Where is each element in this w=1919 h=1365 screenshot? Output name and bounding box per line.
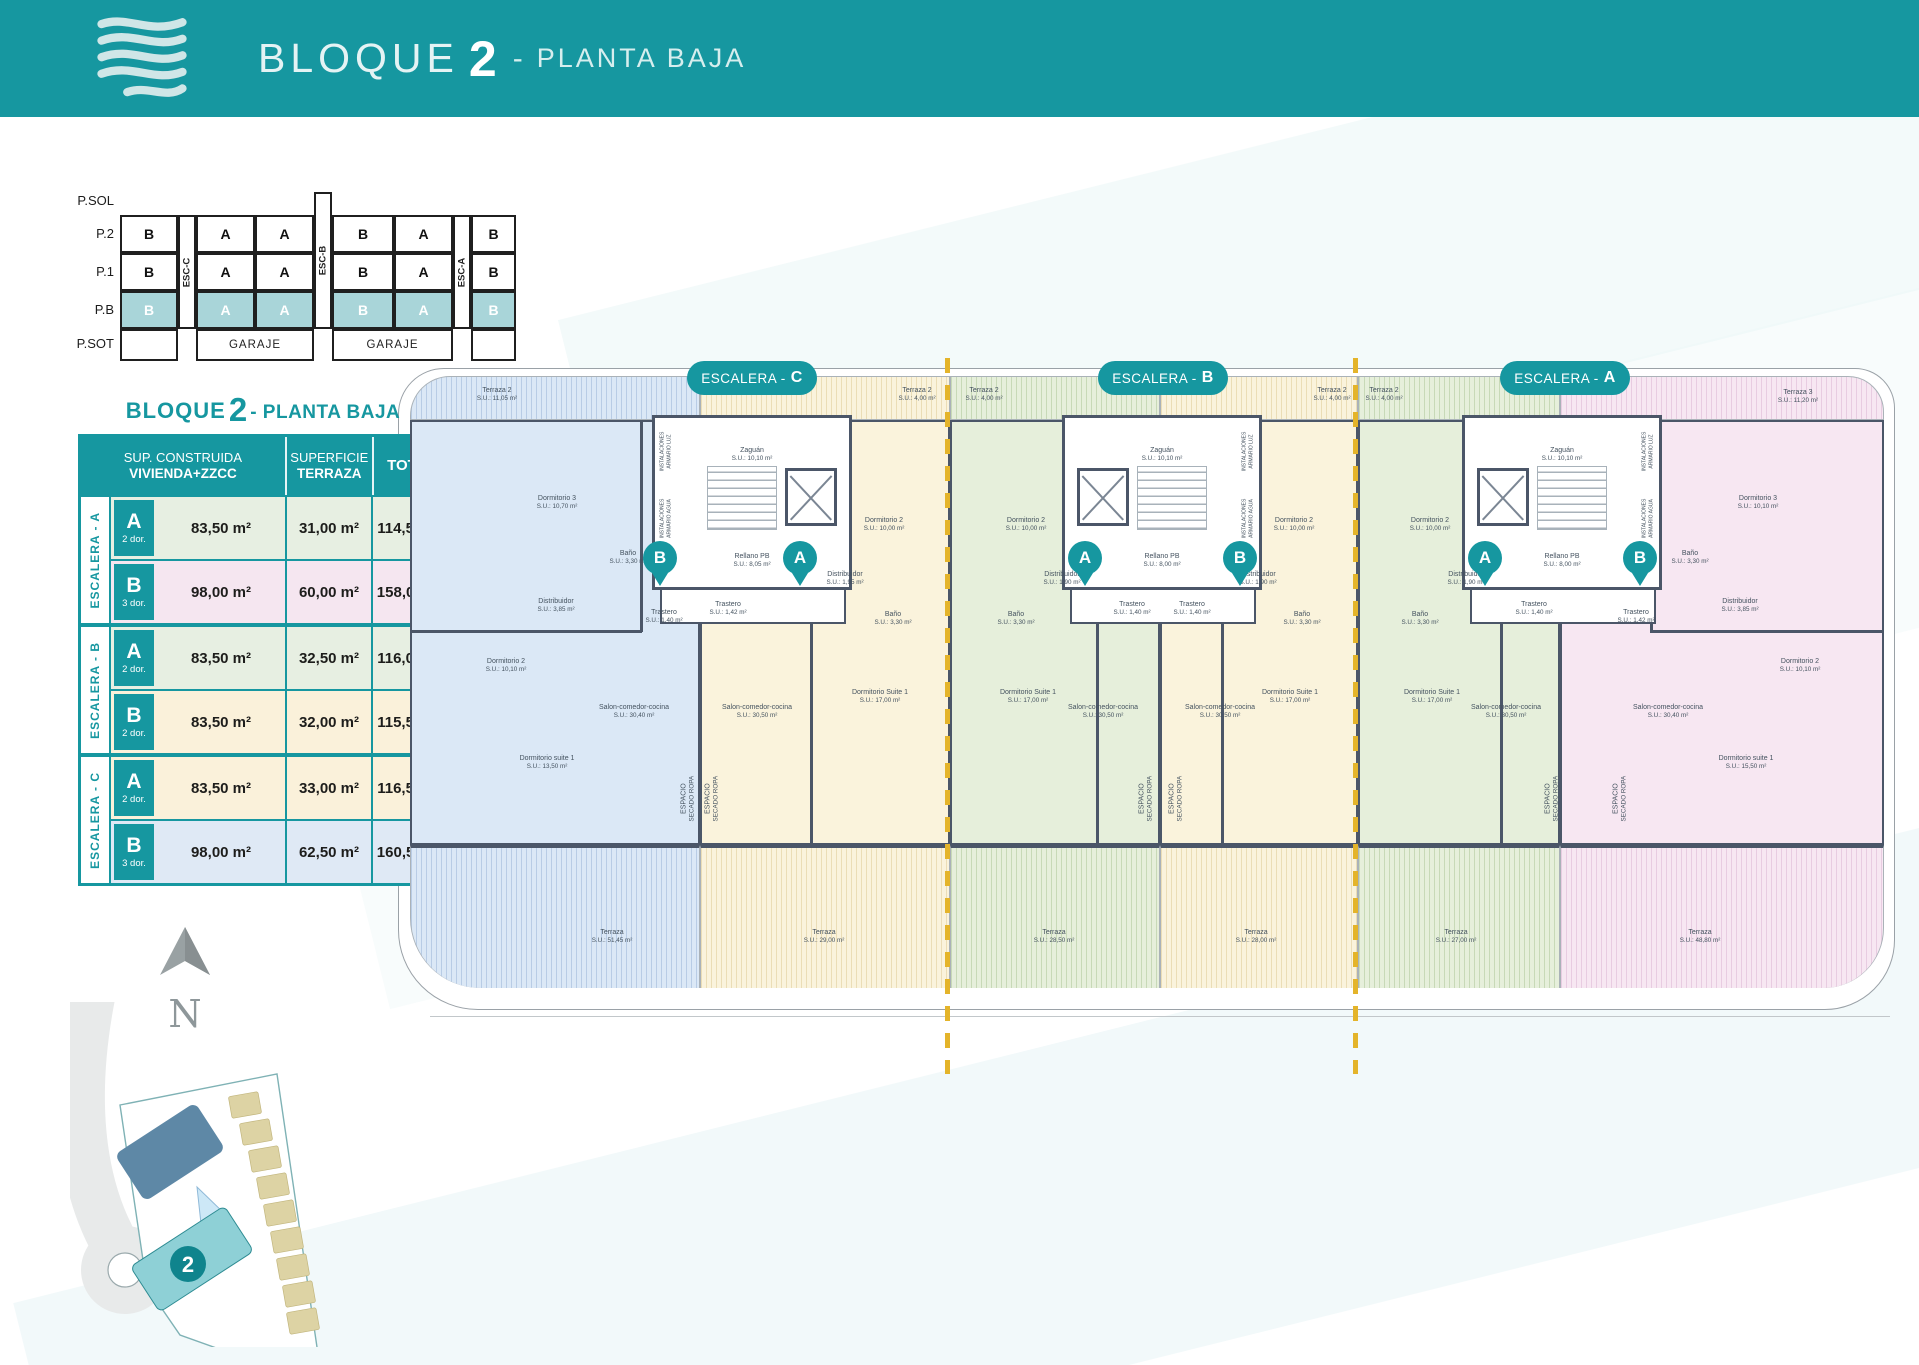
page-title: BLOQUE 2 - PLANTA BAJA	[258, 0, 746, 117]
room-label: TrasteroS.U.: 1,42 m²	[709, 600, 746, 617]
room-label: Dormitorio 2S.U.: 10,10 m²	[486, 657, 527, 674]
room-label: Salon-comedor-cocinaS.U.: 30,40 m²	[599, 703, 669, 720]
room-label: Salon-comedor-cocinaS.U.: 30,40 m²	[1633, 703, 1703, 720]
room-label: TerrazaS.U.: 51,45 m²	[592, 928, 633, 945]
townhouse	[270, 1227, 303, 1254]
section-divider	[1353, 358, 1358, 1074]
room-label: ZaguánS.U.: 10,10 m²	[1142, 446, 1183, 463]
stairs-icon	[707, 466, 777, 530]
stack-cell: A	[255, 253, 314, 291]
title-number: 2	[469, 30, 497, 88]
built-area: 83,50 m²	[157, 627, 285, 689]
built-area: 83,50 m²	[157, 757, 285, 819]
terrace-area: 33,00 m²	[285, 757, 371, 819]
unit-badge: A	[783, 541, 817, 575]
stack-cell: A	[196, 291, 255, 329]
elevator-icon	[785, 468, 837, 526]
room-label: BañoS.U.: 3,30 m²	[1401, 610, 1438, 627]
stack-floor-label: P.SOL	[66, 193, 114, 208]
stack-cell: B	[471, 291, 516, 329]
room-label: Dormitorio suite 1S.U.: 13,50 m²	[520, 754, 575, 771]
room-label: BañoS.U.: 3,30 m²	[1283, 610, 1320, 627]
room-label: INSTALACIONESARMARIO AGUA	[660, 499, 673, 539]
terrace-area: 60,00 m²	[285, 561, 371, 623]
wall	[1650, 630, 1884, 633]
room-label: TrasteroS.U.: 1,42 m²	[1617, 608, 1654, 625]
table-row: B2 dor. 83,50 m² 32,00 m² 115,50 m²	[111, 689, 449, 753]
built-area: 83,50 m²	[157, 691, 285, 753]
townhouse	[228, 1092, 261, 1119]
elevator-icon	[1477, 468, 1529, 526]
townhouse	[239, 1119, 272, 1146]
room-label: TrasteroS.U.: 1,40 m²	[1515, 600, 1552, 617]
room-label: DistribuidorS.U.: 1,95 m²	[826, 570, 863, 587]
room-label: ESPACIOSECADO ROPA	[1137, 776, 1154, 822]
room-label: TerrazaS.U.: 48,80 m²	[1680, 928, 1721, 945]
col-terrace: SUPERFICIE TERRAZA	[285, 437, 372, 495]
unit-badge: B	[1623, 541, 1657, 575]
room-label: INSTALACIONESARMARIO LUZ	[1642, 432, 1655, 472]
table-group-escalera-a: ESCALERA - A A2 dor. 83,50 m² 31,00 m² 1…	[81, 497, 449, 627]
room-label: Dormitorio 3S.U.: 10,70 m²	[537, 494, 578, 511]
stack-floor-label: P.2	[66, 226, 114, 241]
room-label: Terraza 2S.U.: 4,00 m²	[965, 386, 1002, 403]
terrace-bottom-green	[1358, 845, 1560, 988]
stairs-icon	[1137, 466, 1207, 530]
table-row: B3 dor. 98,00 m² 60,00 m² 158,00 m²	[111, 559, 449, 623]
built-area: 98,00 m²	[157, 821, 285, 883]
block-badge-label: 2	[182, 1252, 194, 1277]
room-label: INSTALACIONESARMARIO LUZ	[660, 432, 673, 472]
unit-chip: B2 dor.	[111, 691, 157, 753]
storage-band	[660, 588, 846, 624]
townhouse	[286, 1308, 319, 1335]
room-label: Terraza 2S.U.: 4,00 m²	[1313, 386, 1350, 403]
unit-badge: B	[1223, 541, 1257, 575]
terrace-area: 32,00 m²	[285, 691, 371, 753]
stack-floor-label: P.SOT	[66, 336, 114, 351]
terrace-area: 31,00 m²	[285, 497, 371, 559]
room-label: Terraza 2S.U.: 4,00 m²	[1365, 386, 1402, 403]
stack-cell: A	[255, 291, 314, 329]
terrace-area: 62,50 m²	[285, 821, 371, 883]
unit-chip: A2 dor.	[111, 627, 157, 689]
room-label: Dormitorio Suite 1S.U.: 17,00 m²	[1262, 688, 1318, 705]
ground-line	[430, 1016, 1890, 1017]
stack-cell: A	[255, 215, 314, 253]
room-label: TerrazaS.U.: 28,50 m²	[1034, 928, 1075, 945]
table-group-escalera-c: ESCALERA - C A2 dor. 83,50 m² 33,00 m² 1…	[81, 757, 449, 883]
stack-floor-label: P.1	[66, 264, 114, 279]
room-label: Dormitorio Suite 1S.U.: 17,00 m²	[1000, 688, 1056, 705]
terrace-area: 32,50 m²	[285, 627, 371, 689]
room-label: Terraza 2S.U.: 11,05 m²	[477, 386, 517, 403]
stack-cell: A	[196, 253, 255, 291]
table-header: SUP. CONSTRUIDA VIVIENDA+ZZCC SUPERFICIE…	[81, 437, 449, 497]
room-label: TrasteroS.U.: 1,40 m²	[1113, 600, 1150, 617]
table-title-number: 2	[229, 396, 247, 424]
unit-chip: A2 dor.	[111, 497, 157, 559]
unit-badge: A	[1468, 541, 1502, 575]
townhouse	[248, 1146, 281, 1173]
stack-cell: A	[394, 215, 453, 253]
brochure-page: BLOQUE 2 - PLANTA BAJA BAABABBAABABBAABA…	[0, 0, 1919, 1365]
townhouse	[256, 1173, 289, 1200]
group-label: ESCALERA - B	[88, 642, 102, 739]
stack-stair-column: ESC-B	[314, 192, 332, 329]
header-banner: BLOQUE 2 - PLANTA BAJA	[0, 0, 1919, 117]
room-label: Dormitorio 2S.U.: 10,00 m²	[1274, 516, 1315, 533]
room-label: BañoS.U.: 3,30 m²	[997, 610, 1034, 627]
wave-logo-icon	[96, 10, 188, 108]
terrace-top-blue	[410, 376, 700, 420]
stack-floor-label: P.B	[66, 302, 114, 317]
title-main: BLOQUE	[258, 35, 459, 82]
stack-garaje-cell: GARAJE	[332, 329, 453, 361]
stack-empty-cell	[471, 329, 516, 361]
stack-garaje-cell: GARAJE	[196, 329, 314, 361]
room-label: ESPACIOSECADO ROPA	[1167, 776, 1184, 822]
stack-stair-column: ESC-A	[453, 215, 471, 329]
room-label: TerrazaS.U.: 27,00 m²	[1436, 928, 1477, 945]
stack-cell: B	[332, 291, 394, 329]
table-group-escalera-b: ESCALERA - B A2 dor. 83,50 m² 32,50 m² 1…	[81, 627, 449, 757]
room-label: Dormitorio Suite 1S.U.: 17,00 m²	[852, 688, 908, 705]
title-sub: PLANTA BAJA	[537, 43, 747, 74]
stack-cell: B	[120, 291, 178, 329]
table-row: A2 dor. 83,50 m² 33,00 m² 116,50 m²	[111, 757, 449, 819]
built-area: 83,50 m²	[157, 497, 285, 559]
room-label: Salon-comedor-cocinaS.U.: 30,50 m²	[1471, 703, 1541, 720]
stack-empty-cell	[120, 329, 178, 361]
stack-cell: B	[471, 215, 516, 253]
room-label: DistribuidorS.U.: 3,85 m²	[1721, 597, 1758, 614]
townhouse	[276, 1254, 309, 1281]
terrace-bottom-pink	[1560, 845, 1884, 988]
room-label: DistribuidorS.U.: 3,85 m²	[537, 597, 574, 614]
table-title: BLOQUE 2 - PLANTA BAJA	[80, 396, 446, 424]
room-label: Salon-comedor-cocinaS.U.: 30,50 m²	[1068, 703, 1138, 720]
room-label: INSTALACIONESARMARIO AGUA	[1642, 499, 1655, 539]
room-label: ESPACIOSECADO ROPA	[1611, 776, 1628, 822]
stack-stair-column: ESC-C	[178, 215, 196, 329]
room-label: Dormitorio Suite 1S.U.: 17,00 m²	[1404, 688, 1460, 705]
section-divider	[945, 358, 950, 1074]
room-label: Dormitorio 2S.U.: 10,00 m²	[864, 516, 905, 533]
room-label: BañoS.U.: 3,30 m²	[874, 610, 911, 627]
terrace-bottom-cream	[700, 845, 950, 988]
room-label: Dormitorio 3S.U.: 10,10 m²	[1738, 494, 1779, 511]
room-label: Terraza 2S.U.: 4,00 m²	[898, 386, 935, 403]
built-area: 98,00 m²	[157, 561, 285, 623]
room-label: Terraza 3S.U.: 11,20 m²	[1778, 388, 1818, 405]
stack-cell: B	[471, 253, 516, 291]
room-label: DistribuidorS.U.: 1,90 m²	[1043, 570, 1080, 587]
elevator-icon	[1077, 468, 1129, 526]
room-label: ESPACIOSECADO ROPA	[1543, 776, 1560, 822]
wall	[412, 630, 642, 633]
room-label: ZaguánS.U.: 10,10 m²	[1542, 446, 1583, 463]
room-label: TrasteroS.U.: 1,40 m²	[1173, 600, 1210, 617]
room-label: ESPACIOSECADO ROPA	[679, 776, 696, 822]
terrace-bottom-green	[950, 845, 1160, 988]
table-title-prefix: BLOQUE	[126, 398, 226, 424]
wall	[640, 420, 643, 632]
pill-escalera-b: ESCALERA -B	[1098, 361, 1228, 395]
room-label: INSTALACIONESARMARIO AGUA	[1242, 499, 1255, 539]
terrace-bottom-cream	[1160, 845, 1358, 988]
room-label: Dormitorio 2S.U.: 10,00 m²	[1006, 516, 1047, 533]
group-label: ESCALERA - C	[88, 772, 102, 869]
room-label: TerrazaS.U.: 29,00 m²	[804, 928, 845, 945]
unit-chip: B3 dor.	[111, 821, 157, 883]
site-plan-map: 2	[70, 1002, 370, 1347]
stack-cell: A	[196, 215, 255, 253]
room-label: Dormitorio 2S.U.: 10,10 m²	[1780, 657, 1821, 674]
room-label: BañoS.U.: 3,30 m²	[609, 549, 646, 566]
stack-cell: B	[120, 253, 178, 291]
room-label: BañoS.U.: 3,30 m²	[1671, 549, 1708, 566]
room-label: ZaguánS.U.: 10,10 m²	[732, 446, 773, 463]
stack-cell: B	[332, 215, 394, 253]
storage-band	[1070, 588, 1256, 624]
stack-cell: A	[394, 253, 453, 291]
unit-badge: B	[643, 541, 677, 575]
group-label: ESCALERA - A	[88, 512, 102, 608]
room-label: INSTALACIONESARMARIO LUZ	[1242, 432, 1255, 472]
stack-cell: A	[394, 291, 453, 329]
area-table: SUP. CONSTRUIDA VIVIENDA+ZZCC SUPERFICIE…	[78, 434, 452, 886]
road	[81, 1002, 118, 1250]
pill-escalera-c: ESCALERA -C	[687, 361, 817, 395]
room-label: Rellano PBS.U.: 8,05 m²	[733, 552, 770, 569]
room-label: Dormitorio 2S.U.: 10,00 m²	[1410, 516, 1451, 533]
townhouse	[282, 1281, 315, 1308]
table-title-suffix: - PLANTA BAJA	[250, 402, 400, 424]
room-label: ESPACIOSECADO ROPA	[703, 776, 720, 822]
townhouse	[263, 1200, 296, 1227]
room-label: TrasteroS.U.: 1,40 m²	[645, 608, 682, 625]
stack-cell: B	[120, 215, 178, 253]
stairs-icon	[1537, 466, 1607, 530]
unit-chip: B3 dor.	[111, 561, 157, 623]
table-row: B3 dor. 98,00 m² 62,50 m² 160,50 m²	[111, 819, 449, 883]
terrace-bottom-blue	[410, 845, 700, 988]
room-label: Salon-comedor-cocinaS.U.: 30,50 m²	[722, 703, 792, 720]
table-row: A2 dor. 83,50 m² 31,00 m² 114,50 m²	[111, 497, 449, 559]
table-row: A2 dor. 83,50 m² 32,50 m² 116,00 m²	[111, 627, 449, 689]
stack-cell: B	[332, 253, 394, 291]
title-dash: -	[513, 42, 523, 76]
room-label: Salon-comedor-cocinaS.U.: 30,50 m²	[1185, 703, 1255, 720]
room-label: TerrazaS.U.: 28,00 m²	[1236, 928, 1277, 945]
room-label: Rellano PBS.U.: 8,00 m²	[1143, 552, 1180, 569]
unit-chip: A2 dor.	[111, 757, 157, 819]
room-label: Dormitorio suite 1S.U.: 15,50 m²	[1719, 754, 1774, 771]
unit-badge: A	[1068, 541, 1102, 575]
pill-escalera-a: ESCALERA -A	[1500, 361, 1630, 395]
col-built: SUP. CONSTRUIDA VIVIENDA+ZZCC	[81, 437, 285, 495]
room-label: Rellano PBS.U.: 8,00 m²	[1543, 552, 1580, 569]
